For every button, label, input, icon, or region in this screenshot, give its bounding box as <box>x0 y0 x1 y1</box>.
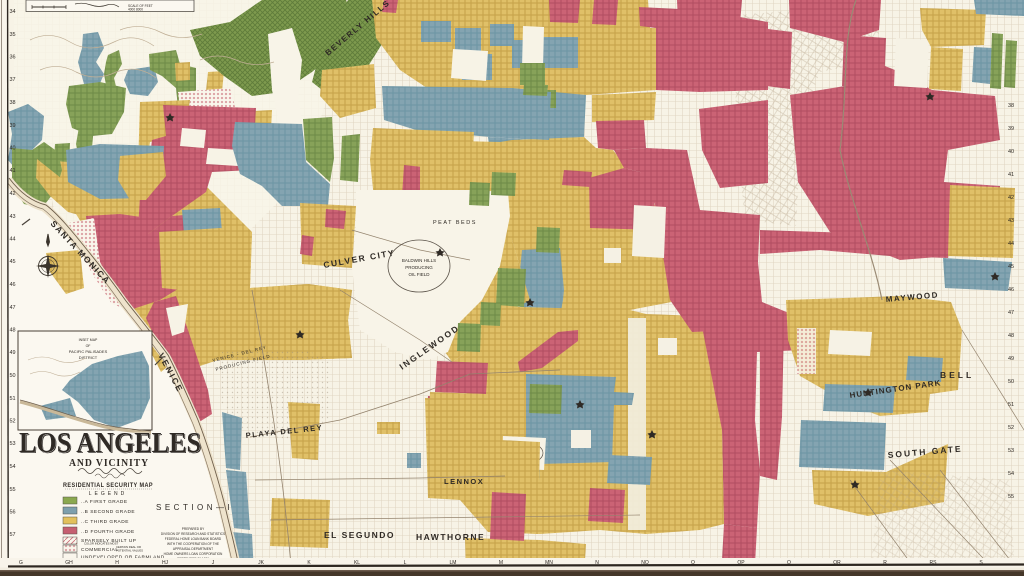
svg-text:55: 55 <box>1008 494 1014 500</box>
svg-text:H: H <box>115 560 119 566</box>
svg-text:42: 42 <box>1008 195 1014 201</box>
svg-text:49: 49 <box>1008 356 1014 362</box>
svg-text:36: 36 <box>10 55 16 61</box>
svg-text:M: M <box>499 560 503 566</box>
svg-text:WITH THE COOPERATION OF THE: WITH THE COOPERATION OF THE <box>167 542 219 546</box>
svg-text:..D FOURTH GRADE: ..D FOURTH GRADE <box>81 529 135 535</box>
svg-text:QR: QR <box>833 560 841 566</box>
svg-text:DISTRICT: DISTRICT <box>79 355 98 360</box>
svg-text:55: 55 <box>10 487 16 493</box>
svg-text:49: 49 <box>10 350 16 356</box>
svg-text:43: 43 <box>10 214 16 220</box>
svg-text:RESIDENTIAL SECURITY MAP: RESIDENTIAL SECURITY MAP <box>63 482 153 489</box>
svg-text:50: 50 <box>10 373 16 379</box>
svg-text:PREPARED BY: PREPARED BY <box>182 527 205 531</box>
svg-text:52: 52 <box>1008 425 1014 431</box>
svg-text:PEAT BEDS: PEAT BEDS <box>433 220 477 226</box>
svg-text:NO: NO <box>641 560 649 566</box>
svg-text:OP: OP <box>737 560 745 566</box>
svg-text:PACIFIC PALISADES: PACIFIC PALISADES <box>69 349 108 354</box>
svg-text:RS: RS <box>930 560 938 566</box>
svg-text:APPRAISAL DEPARTMENT: APPRAISAL DEPARTMENT <box>173 547 213 551</box>
svg-text:56: 56 <box>10 510 16 516</box>
svg-text:HAWTHORNE: HAWTHORNE <box>416 532 485 542</box>
svg-text:COMMERCIAL: COMMERCIAL <box>81 547 119 553</box>
svg-text:44: 44 <box>1008 241 1014 247</box>
svg-text:38: 38 <box>10 100 16 106</box>
svg-text:40: 40 <box>10 146 16 152</box>
svg-text:4000 8000: 4000 8000 <box>128 8 143 12</box>
svg-text:HOME OWNERS LOAN CORPORATION: HOME OWNERS LOAN CORPORATION <box>164 552 223 556</box>
svg-text:FEDERAL HOME LOAN BANK BOARD: FEDERAL HOME LOAN BANK BOARD <box>165 537 222 541</box>
svg-text:53: 53 <box>10 441 16 447</box>
svg-text:51: 51 <box>1008 402 1014 408</box>
svg-text:38: 38 <box>1008 103 1014 109</box>
svg-text:OF: OF <box>86 344 91 348</box>
svg-text:INSET MAP: INSET MAP <box>79 338 98 342</box>
svg-text:N: N <box>595 560 599 566</box>
svg-text:54: 54 <box>10 464 16 470</box>
svg-text:35: 35 <box>10 32 16 38</box>
svg-text:47: 47 <box>10 305 16 311</box>
svg-text:AND VICINITY: AND VICINITY <box>69 458 149 469</box>
svg-text:41: 41 <box>10 168 16 174</box>
svg-text:MN: MN <box>545 560 553 566</box>
svg-text:SECTION—I: SECTION—I <box>156 503 233 512</box>
svg-text:LENNOX: LENNOX <box>444 477 484 486</box>
svg-text:BALDWIN HILLS: BALDWIN HILLS <box>402 258 436 263</box>
svg-text:45: 45 <box>1008 264 1014 270</box>
svg-text:..A FIRST GRADE: ..A FIRST GRADE <box>81 499 128 505</box>
svg-text:57: 57 <box>10 532 16 538</box>
svg-text:53: 53 <box>1008 448 1014 454</box>
svg-text:GH: GH <box>65 560 73 566</box>
svg-text:R: R <box>883 560 887 566</box>
svg-text:45: 45 <box>10 259 16 265</box>
svg-text:COLOR INDICATES MOST: COLOR INDICATES MOST <box>84 542 119 546</box>
svg-text:EL SEGUNDO: EL SEGUNDO <box>324 530 395 540</box>
svg-text:..C THIRD GRADE: ..C THIRD GRADE <box>81 519 129 525</box>
svg-text:43: 43 <box>1008 218 1014 224</box>
svg-text:39: 39 <box>10 123 16 129</box>
svg-text:34: 34 <box>10 9 16 15</box>
svg-text:Q: Q <box>787 560 791 566</box>
svg-text:KL: KL <box>354 560 360 566</box>
svg-text:54: 54 <box>1008 471 1014 477</box>
svg-text:PRODUCING: PRODUCING <box>405 265 433 270</box>
svg-text:..B SECOND GRADE: ..B SECOND GRADE <box>81 509 135 515</box>
svg-text:50: 50 <box>1008 379 1014 385</box>
svg-text:POTENTIAL VALUES: POTENTIAL VALUES <box>116 549 143 553</box>
svg-text:LOS ANGELES: LOS ANGELES <box>19 428 201 459</box>
svg-text:44: 44 <box>10 237 16 243</box>
svg-text:DIVISION OF RESEARCH AND STATI: DIVISION OF RESEARCH AND STATISTICS <box>161 532 225 536</box>
svg-text:47: 47 <box>1008 310 1014 316</box>
svg-text:46: 46 <box>10 282 16 288</box>
svg-text:O: O <box>691 560 695 566</box>
svg-text:HJ: HJ <box>162 560 169 566</box>
svg-text:37: 37 <box>10 77 16 83</box>
svg-text:51: 51 <box>10 396 16 402</box>
svg-text:42: 42 <box>10 191 16 197</box>
svg-text:48: 48 <box>10 328 16 334</box>
svg-text:40: 40 <box>1008 149 1014 155</box>
svg-text:41: 41 <box>1008 172 1014 178</box>
svg-text:G: G <box>19 560 23 566</box>
svg-text:46: 46 <box>1008 287 1014 293</box>
svg-text:LEGEND: LEGEND <box>89 491 128 497</box>
svg-text:39: 39 <box>1008 126 1014 132</box>
svg-text:52: 52 <box>10 419 16 425</box>
svg-text:48: 48 <box>1008 333 1014 339</box>
svg-text:L: L <box>404 560 407 566</box>
svg-text:LM: LM <box>450 560 457 566</box>
svg-text:JK: JK <box>258 560 265 566</box>
svg-text:BELL: BELL <box>940 370 974 380</box>
svg-text:OIL FIELD: OIL FIELD <box>408 272 430 277</box>
